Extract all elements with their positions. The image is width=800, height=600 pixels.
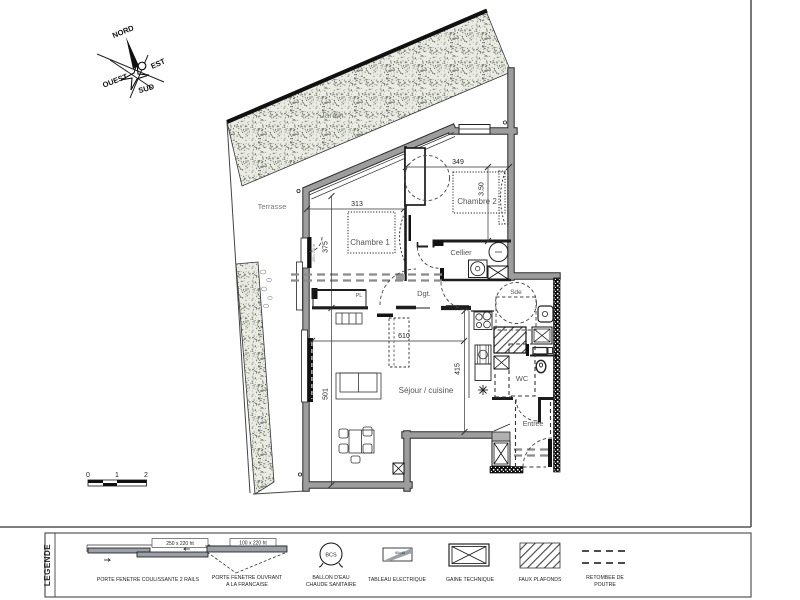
svg-text:BCS: BCS bbox=[325, 553, 337, 559]
svg-text:CHAUDE SANITAIRE: CHAUDE SANITAIRE bbox=[306, 582, 357, 588]
svg-text:415: 415 bbox=[455, 363, 462, 375]
svg-text:100 x 220 ht: 100 x 220 ht bbox=[239, 541, 267, 547]
svg-text:Chambre 2: Chambre 2 bbox=[457, 197, 497, 206]
svg-text:Chambre 1: Chambre 1 bbox=[350, 238, 390, 247]
svg-text:EST: EST bbox=[149, 56, 166, 70]
svg-text:313: 313 bbox=[351, 201, 363, 208]
svg-text:2: 2 bbox=[144, 472, 148, 479]
svg-text:375: 375 bbox=[323, 241, 330, 253]
svg-text:Séjour / cuisine: Séjour / cuisine bbox=[399, 386, 454, 395]
svg-text:SUD: SUD bbox=[137, 82, 155, 95]
svg-text:501: 501 bbox=[323, 388, 330, 400]
svg-text:610: 610 bbox=[398, 333, 410, 340]
svg-text:Sde: Sde bbox=[510, 289, 522, 296]
svg-text:Dgt.: Dgt. bbox=[417, 289, 431, 298]
svg-text:Cellier: Cellier bbox=[450, 248, 472, 257]
svg-text:3.50: 3.50 bbox=[479, 182, 486, 196]
svg-text:60x40: 60x40 bbox=[395, 551, 405, 555]
svg-text:FAUX PLAFONDS: FAUX PLAFONDS bbox=[519, 577, 562, 583]
svg-text:WC: WC bbox=[516, 374, 529, 383]
svg-text:PORTE FENETRE OUVRANT: PORTE FENETRE OUVRANT bbox=[212, 575, 283, 581]
svg-text:RETOMBEE DE: RETOMBEE DE bbox=[586, 575, 624, 581]
svg-text:250 x 220 ht: 250 x 220 ht bbox=[166, 541, 194, 547]
svg-text:349: 349 bbox=[452, 159, 464, 166]
svg-text:BALLON D'EAU: BALLON D'EAU bbox=[312, 575, 350, 581]
svg-text:PL: PL bbox=[356, 293, 363, 299]
svg-text:Jardin: Jardin bbox=[320, 110, 343, 120]
svg-text:PORTE FENETRE COULISSANTE 2 RA: PORTE FENETRE COULISSANTE 2 RAILS bbox=[97, 577, 200, 583]
svg-text:GAINE TECHNIQUE: GAINE TECHNIQUE bbox=[446, 577, 495, 583]
svg-text:OUEST: OUEST bbox=[101, 72, 129, 90]
svg-text:0: 0 bbox=[86, 472, 90, 479]
svg-text:TABLEAU ELECTRIQUE: TABLEAU ELECTRIQUE bbox=[368, 577, 426, 583]
svg-text:250 x 220 ht: 250 x 220 ht bbox=[312, 244, 316, 262]
svg-text:Entrée: Entrée bbox=[523, 421, 544, 428]
svg-text:LEGENDE: LEGENDE bbox=[43, 544, 52, 586]
svg-text:A LA FRANCAISE: A LA FRANCAISE bbox=[226, 582, 268, 588]
svg-text:NORD: NORD bbox=[111, 23, 136, 40]
svg-text:1: 1 bbox=[115, 472, 119, 479]
svg-text:POUTRE: POUTRE bbox=[594, 582, 616, 588]
svg-text:Terrasse: Terrasse bbox=[258, 202, 287, 211]
